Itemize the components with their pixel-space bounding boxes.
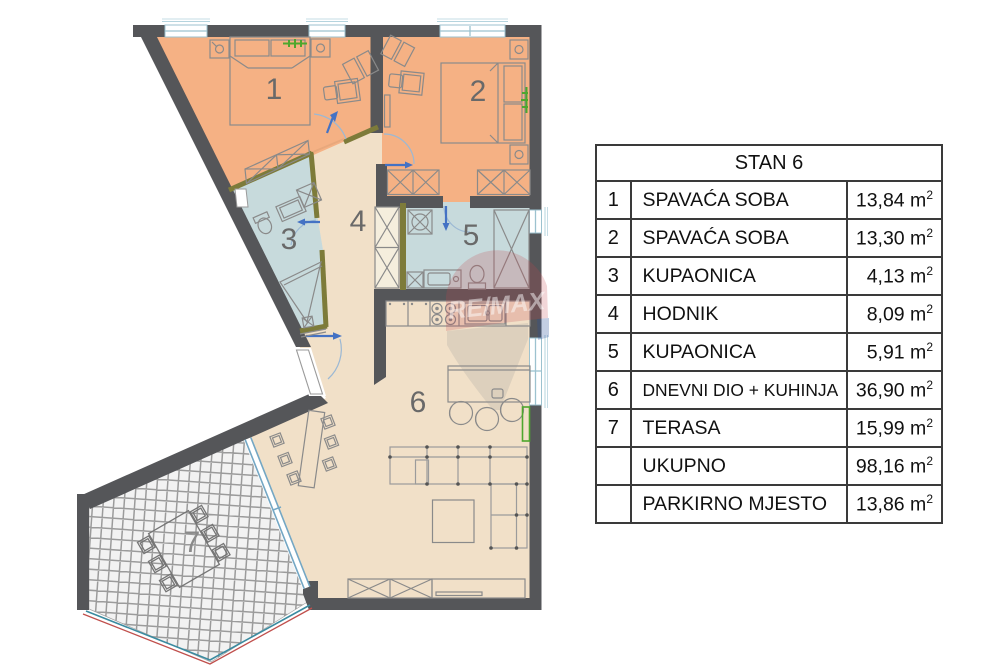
svg-text:6: 6 xyxy=(410,386,427,419)
svg-text:4: 4 xyxy=(350,205,367,238)
svg-text:2: 2 xyxy=(470,75,487,108)
svg-text:5: 5 xyxy=(463,219,480,252)
svg-text:7: 7 xyxy=(184,526,201,559)
svg-text:1: 1 xyxy=(266,73,283,106)
svg-text:3: 3 xyxy=(281,223,298,256)
